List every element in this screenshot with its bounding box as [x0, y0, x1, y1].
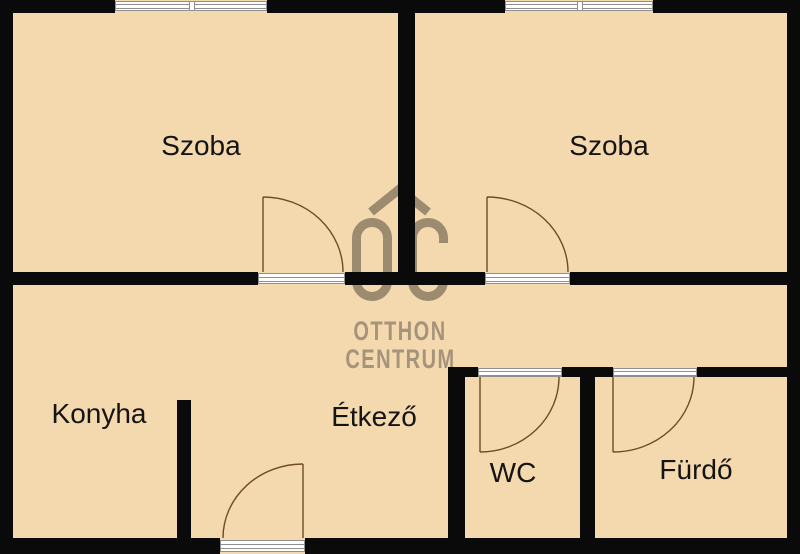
- room-label-szoba-right: Szoba: [569, 130, 648, 162]
- wall-furdo-top: [697, 367, 787, 377]
- wall-middle-horizontal-1: [13, 272, 258, 285]
- door-swing-arc-szoba-right: [487, 197, 568, 272]
- wall-wc-left: [448, 367, 465, 538]
- room-label-szoba-left: Szoba: [161, 130, 240, 162]
- floorplan-canvas: OTTHON CENTRUM Szo: [0, 0, 800, 554]
- door-opening-szoba-left: [258, 273, 345, 284]
- wall-wc-furdo-divider: [580, 377, 595, 538]
- wall-between-bedrooms: [398, 0, 415, 285]
- room-label-furdo: Fürdő: [659, 454, 732, 486]
- wall-middle-horizontal-3: [570, 272, 787, 285]
- wall-konyha-stub: [177, 400, 191, 538]
- door-opening-entrance: [220, 540, 305, 552]
- door-opening-szoba-right: [485, 273, 570, 284]
- door-opening-wc: [478, 368, 562, 377]
- wall-bottom-right: [305, 538, 800, 554]
- room-label-etkezo: Étkező: [331, 401, 417, 433]
- wall-top-left: [0, 0, 115, 13]
- wall-middle-horizontal-2: [345, 272, 485, 285]
- wall-left-outer: [0, 0, 13, 554]
- door-opening-furdo: [613, 368, 697, 377]
- room-label-wc: WC: [490, 457, 537, 489]
- window-symbol-szoba-right: [505, 1, 653, 11]
- door-swing-arc-szoba-left: [263, 197, 343, 272]
- window-symbol-szoba-left: [115, 1, 267, 11]
- wall-right-outer: [787, 0, 800, 554]
- wall-wc-top-2: [562, 367, 613, 377]
- wall-top-middle: [267, 0, 505, 13]
- wall-bottom-left: [0, 538, 220, 554]
- door-swing-arc-entrance: [223, 464, 303, 538]
- door-swing-arc-furdo: [613, 377, 694, 452]
- wall-top-right: [653, 0, 800, 13]
- door-swing-arc-wc: [480, 377, 559, 452]
- room-label-konyha: Konyha: [52, 398, 147, 430]
